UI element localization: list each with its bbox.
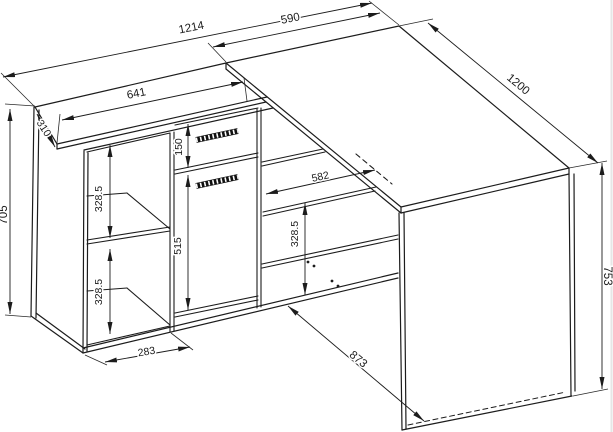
corner-desk-technical-drawing: 1214 590 641 1200 310 705 753 150 515 32… bbox=[0, 0, 613, 432]
dim-label-drawer-height: 150 bbox=[173, 138, 185, 156]
desk-top bbox=[226, 26, 569, 213]
dim-label-inner-width: 582 bbox=[310, 169, 330, 185]
dim-label-floor-diagonal: 873 bbox=[347, 349, 369, 371]
dim-label-cabinet-height: 705 bbox=[0, 205, 10, 224]
shelf-pin-holes bbox=[307, 261, 340, 288]
dim-label-door-height: 515 bbox=[172, 237, 184, 255]
floor-contact-dashed bbox=[408, 392, 566, 425]
hidden-edge-dashed bbox=[356, 154, 392, 184]
furniture-dimension-drawing: 1214 590 641 1200 310 705 753 150 515 32… bbox=[0, 0, 613, 432]
dim-line-1214 bbox=[3, 3, 372, 77]
dim-line-641 bbox=[62, 82, 243, 120]
left-shelf-bay bbox=[87, 132, 174, 345]
dim-label-left-bay-width: 283 bbox=[137, 345, 156, 360]
drawer-handle bbox=[196, 131, 238, 140]
dim-label-shelf-left-bottom: 328.5 bbox=[93, 279, 105, 305]
dim-label-total-width: 1214 bbox=[178, 20, 206, 37]
dim-label-desk-top-width: 590 bbox=[280, 11, 301, 27]
dim-label-shelf-left-top: 328.5 bbox=[93, 186, 105, 212]
desk-side-panel bbox=[399, 174, 575, 430]
under-desk-shelf-bay bbox=[262, 149, 398, 268]
dim-label-desk-length: 1200 bbox=[504, 72, 531, 98]
door-handle bbox=[196, 177, 238, 186]
dim-label-shelf-right: 328.5 bbox=[289, 221, 301, 247]
dim-line-1200 bbox=[428, 23, 598, 163]
dim-label-cabinet-top-width: 641 bbox=[126, 86, 147, 102]
dim-label-desk-height: 753 bbox=[601, 266, 613, 285]
dimension-labels: 1214 590 641 1200 310 705 753 150 515 32… bbox=[0, 11, 613, 370]
cabinet-body bbox=[31, 63, 398, 353]
dim-label-cabinet-top-depth: 310 bbox=[34, 118, 54, 139]
